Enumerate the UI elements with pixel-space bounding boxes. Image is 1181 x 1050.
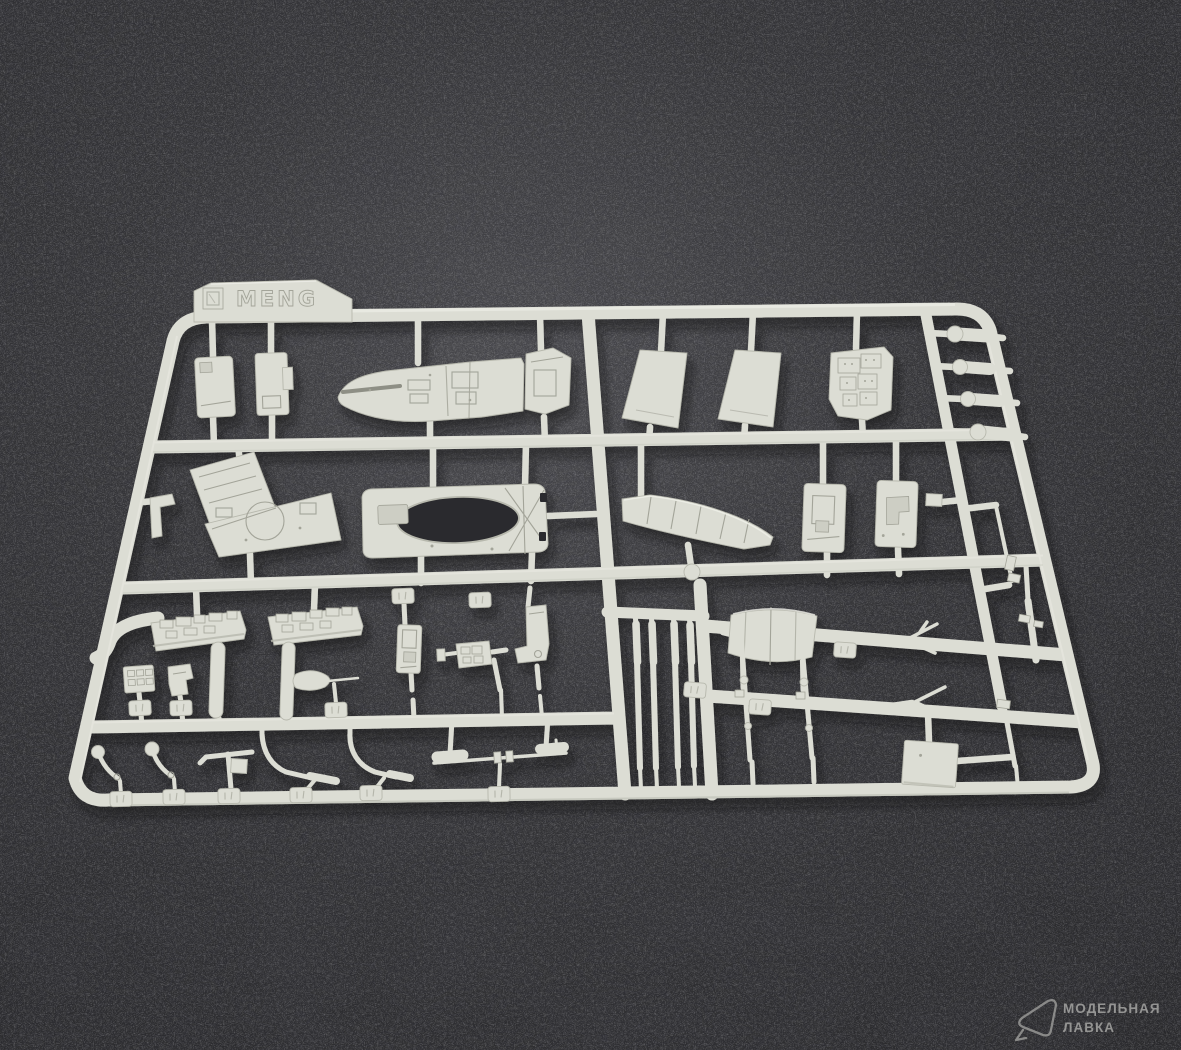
part-side-panel-2 — [875, 480, 918, 547]
part-number-tag — [110, 791, 132, 806]
part-instrument-panel — [829, 347, 893, 420]
part-number-tag — [218, 788, 240, 803]
part-fuselage-top-deck — [362, 484, 548, 558]
part-number-tag — [163, 789, 185, 804]
part-round-rod-1 — [209, 642, 226, 718]
part-square-plate — [902, 740, 959, 788]
photo-model-sprue: Light grey injection-molded plastic mode… — [0, 0, 1181, 1050]
part-side-panel-1 — [802, 483, 846, 552]
part-number-tag — [170, 700, 193, 716]
part-small-rect-1 — [194, 356, 235, 418]
carpet-background — [0, 0, 1181, 1050]
part-small-bracket — [926, 494, 943, 507]
part-number-tag — [683, 682, 706, 699]
part-number-tag — [469, 592, 492, 608]
part-number-tag — [834, 642, 857, 658]
part-number-tag — [129, 700, 152, 716]
part-detail-box — [123, 665, 155, 693]
part-vertical-panel — [396, 625, 422, 674]
brand-logo-text: MENG — [236, 287, 318, 311]
part-number-tag — [392, 588, 415, 604]
part-number-tag — [290, 787, 312, 802]
part-number-tag — [325, 702, 348, 718]
part-long-rod-2 — [652, 624, 656, 768]
part-number-tag — [749, 699, 772, 715]
carpet-speckle-texture — [0, 0, 1181, 1050]
sprue-letter-box — [203, 288, 223, 309]
part-fuselage-insert — [525, 348, 571, 414]
watermark-line-1: МОДЕЛЬНАЯ — [1063, 1001, 1161, 1016]
part-number-tag — [488, 786, 510, 801]
watermark-line-2: ЛАВКА — [1063, 1020, 1115, 1035]
part-number-tag — [360, 785, 382, 800]
part-long-rod-1 — [636, 624, 640, 768]
wing-panel-gate-blob — [684, 564, 700, 580]
brand-tab: MENG — [194, 280, 352, 322]
part-long-rod-3 — [674, 624, 678, 767]
